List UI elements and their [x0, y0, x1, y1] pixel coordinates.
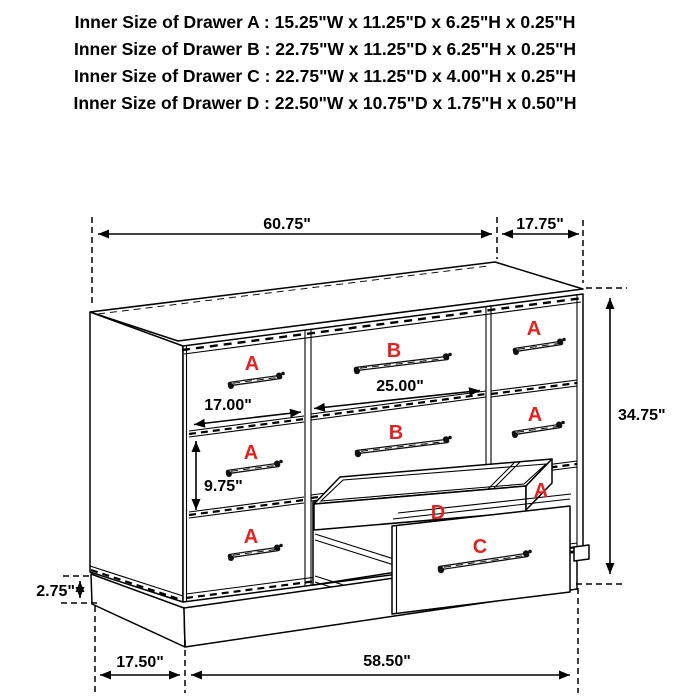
dim-base-front-width-value: 58.50": [363, 653, 411, 670]
drawer-size-specs: Inner Size of Drawer A : 15.25"W x 11.25…: [0, 9, 650, 117]
label-d: D: [431, 502, 445, 524]
label-a-right-3: A: [534, 480, 548, 502]
label-b-2: B: [389, 422, 403, 444]
spec-line-d: Inner Size of Drawer D : 22.50"W x 10.75…: [0, 90, 650, 117]
label-b-1: B: [387, 340, 401, 362]
dim-center-drawer-width-value: 25.00": [376, 378, 424, 395]
dim-left-drawer-width-value: 17.00": [204, 397, 252, 414]
label-a-right-2: A: [528, 404, 542, 426]
spec-line-a: Inner Size of Drawer A : 15.25"W x 11.25…: [0, 9, 650, 36]
label-a-right-1: A: [527, 318, 541, 340]
dim-overall-height-value: 34.75": [618, 407, 666, 424]
dim-base-height-value: 2.75": [36, 583, 75, 600]
dim-top-depth-value: 17.75": [516, 216, 564, 233]
cabinet-left-side-panel: [90, 312, 183, 602]
spec-line-c: Inner Size of Drawer C : 22.75"W x 11.25…: [0, 63, 650, 90]
dim-top-width-value: 60.75": [263, 216, 311, 233]
label-c: C: [473, 536, 487, 558]
dim-base-height: 2.75": [36, 576, 98, 603]
dresser-dimension-diagram: Inner Size of Drawer A : 15.25"W x 11.25…: [0, 0, 700, 700]
dim-overall-height: 34.75": [576, 288, 666, 584]
label-a-left-2: A: [244, 442, 258, 464]
dim-base-side-depth-value: 17.50": [116, 654, 164, 671]
label-a-left-1: A: [245, 353, 259, 375]
spec-line-b: Inner Size of Drawer B : 22.75"W x 11.25…: [0, 36, 650, 63]
dim-middle-drawer-height-value: 9.75": [204, 478, 243, 495]
right-leg: [574, 545, 589, 561]
label-a-left-3: A: [244, 526, 258, 548]
